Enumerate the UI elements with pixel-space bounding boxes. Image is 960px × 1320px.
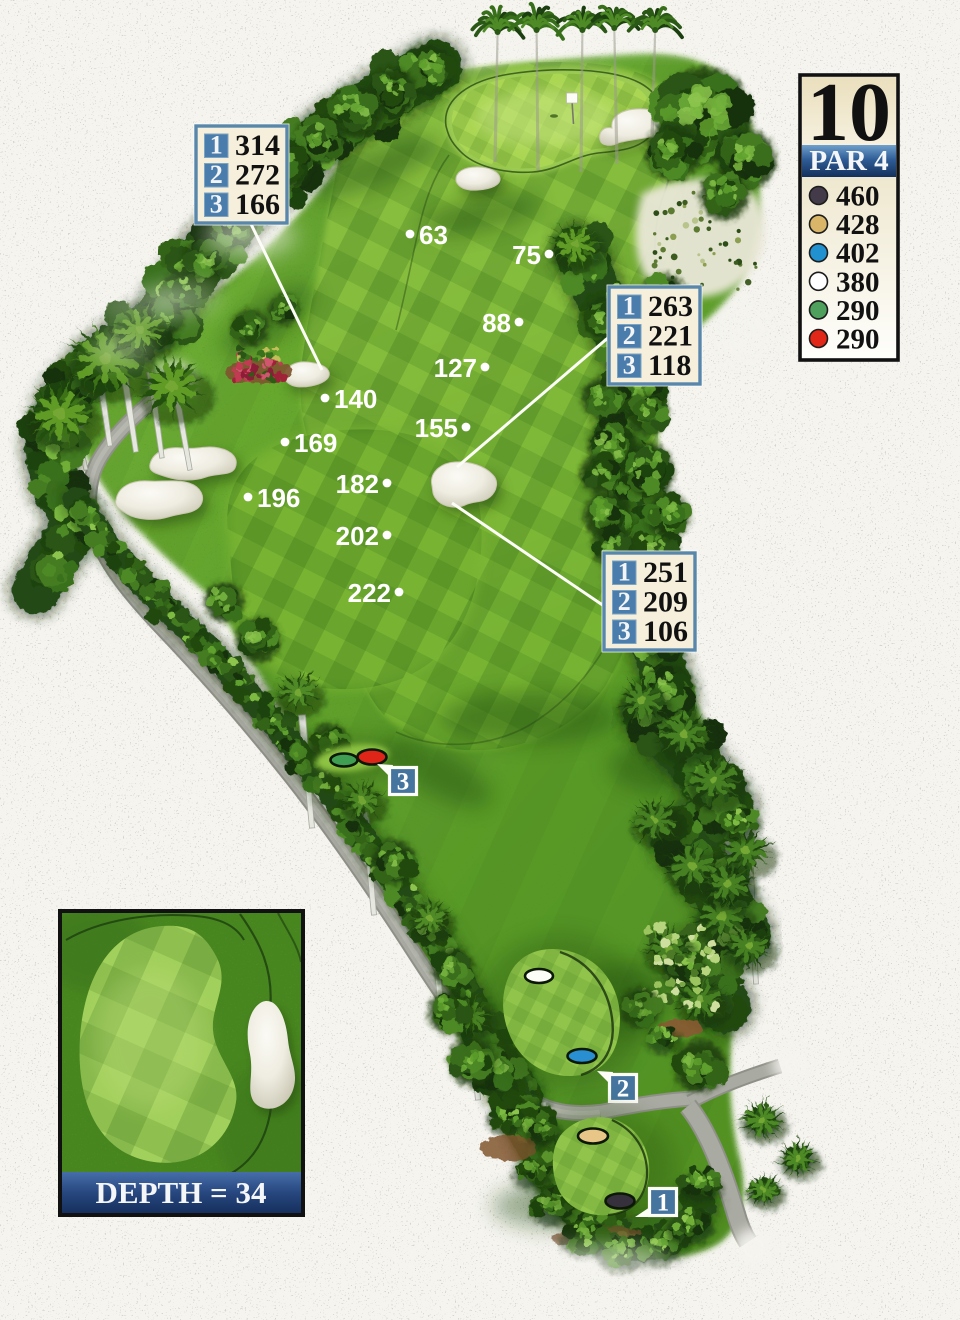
svg-text:63: 63 bbox=[419, 220, 448, 250]
svg-text:3: 3 bbox=[618, 617, 631, 646]
svg-text:290: 290 bbox=[836, 324, 880, 356]
svg-text:2: 2 bbox=[623, 321, 636, 350]
svg-text:127: 127 bbox=[434, 353, 477, 383]
svg-text:88: 88 bbox=[482, 308, 511, 338]
svg-text:290: 290 bbox=[836, 295, 880, 327]
svg-text:2: 2 bbox=[618, 587, 631, 616]
svg-text:182: 182 bbox=[336, 469, 379, 499]
svg-text:1: 1 bbox=[623, 292, 636, 321]
svg-text:155: 155 bbox=[415, 413, 458, 443]
svg-text:314: 314 bbox=[235, 129, 280, 162]
svg-text:106: 106 bbox=[643, 615, 688, 648]
svg-text:3: 3 bbox=[397, 769, 410, 796]
svg-text:75: 75 bbox=[512, 240, 541, 270]
svg-text:169: 169 bbox=[294, 428, 337, 458]
svg-text:DEPTH = 34: DEPTH = 34 bbox=[96, 1175, 267, 1210]
svg-text:272: 272 bbox=[235, 159, 280, 192]
svg-text:402: 402 bbox=[836, 238, 880, 270]
svg-text:1: 1 bbox=[657, 1190, 670, 1217]
svg-text:460: 460 bbox=[836, 181, 880, 213]
svg-text:3: 3 bbox=[210, 190, 223, 219]
svg-text:428: 428 bbox=[836, 209, 880, 241]
svg-text:222: 222 bbox=[348, 578, 391, 608]
svg-text:202: 202 bbox=[336, 521, 379, 551]
svg-text:251: 251 bbox=[643, 556, 688, 589]
svg-text:263: 263 bbox=[648, 290, 693, 323]
svg-text:209: 209 bbox=[643, 586, 688, 619]
svg-text:2: 2 bbox=[617, 1076, 630, 1103]
svg-text:1: 1 bbox=[618, 558, 631, 587]
svg-text:166: 166 bbox=[235, 188, 280, 221]
svg-text:196: 196 bbox=[257, 483, 300, 513]
svg-text:380: 380 bbox=[836, 266, 880, 298]
svg-text:1: 1 bbox=[210, 131, 223, 160]
svg-text:221: 221 bbox=[648, 320, 693, 353]
svg-text:140: 140 bbox=[334, 384, 377, 414]
svg-text:118: 118 bbox=[648, 349, 691, 382]
svg-text:PAR 4: PAR 4 bbox=[809, 145, 888, 177]
svg-text:3: 3 bbox=[623, 351, 636, 380]
svg-text:2: 2 bbox=[210, 160, 223, 189]
